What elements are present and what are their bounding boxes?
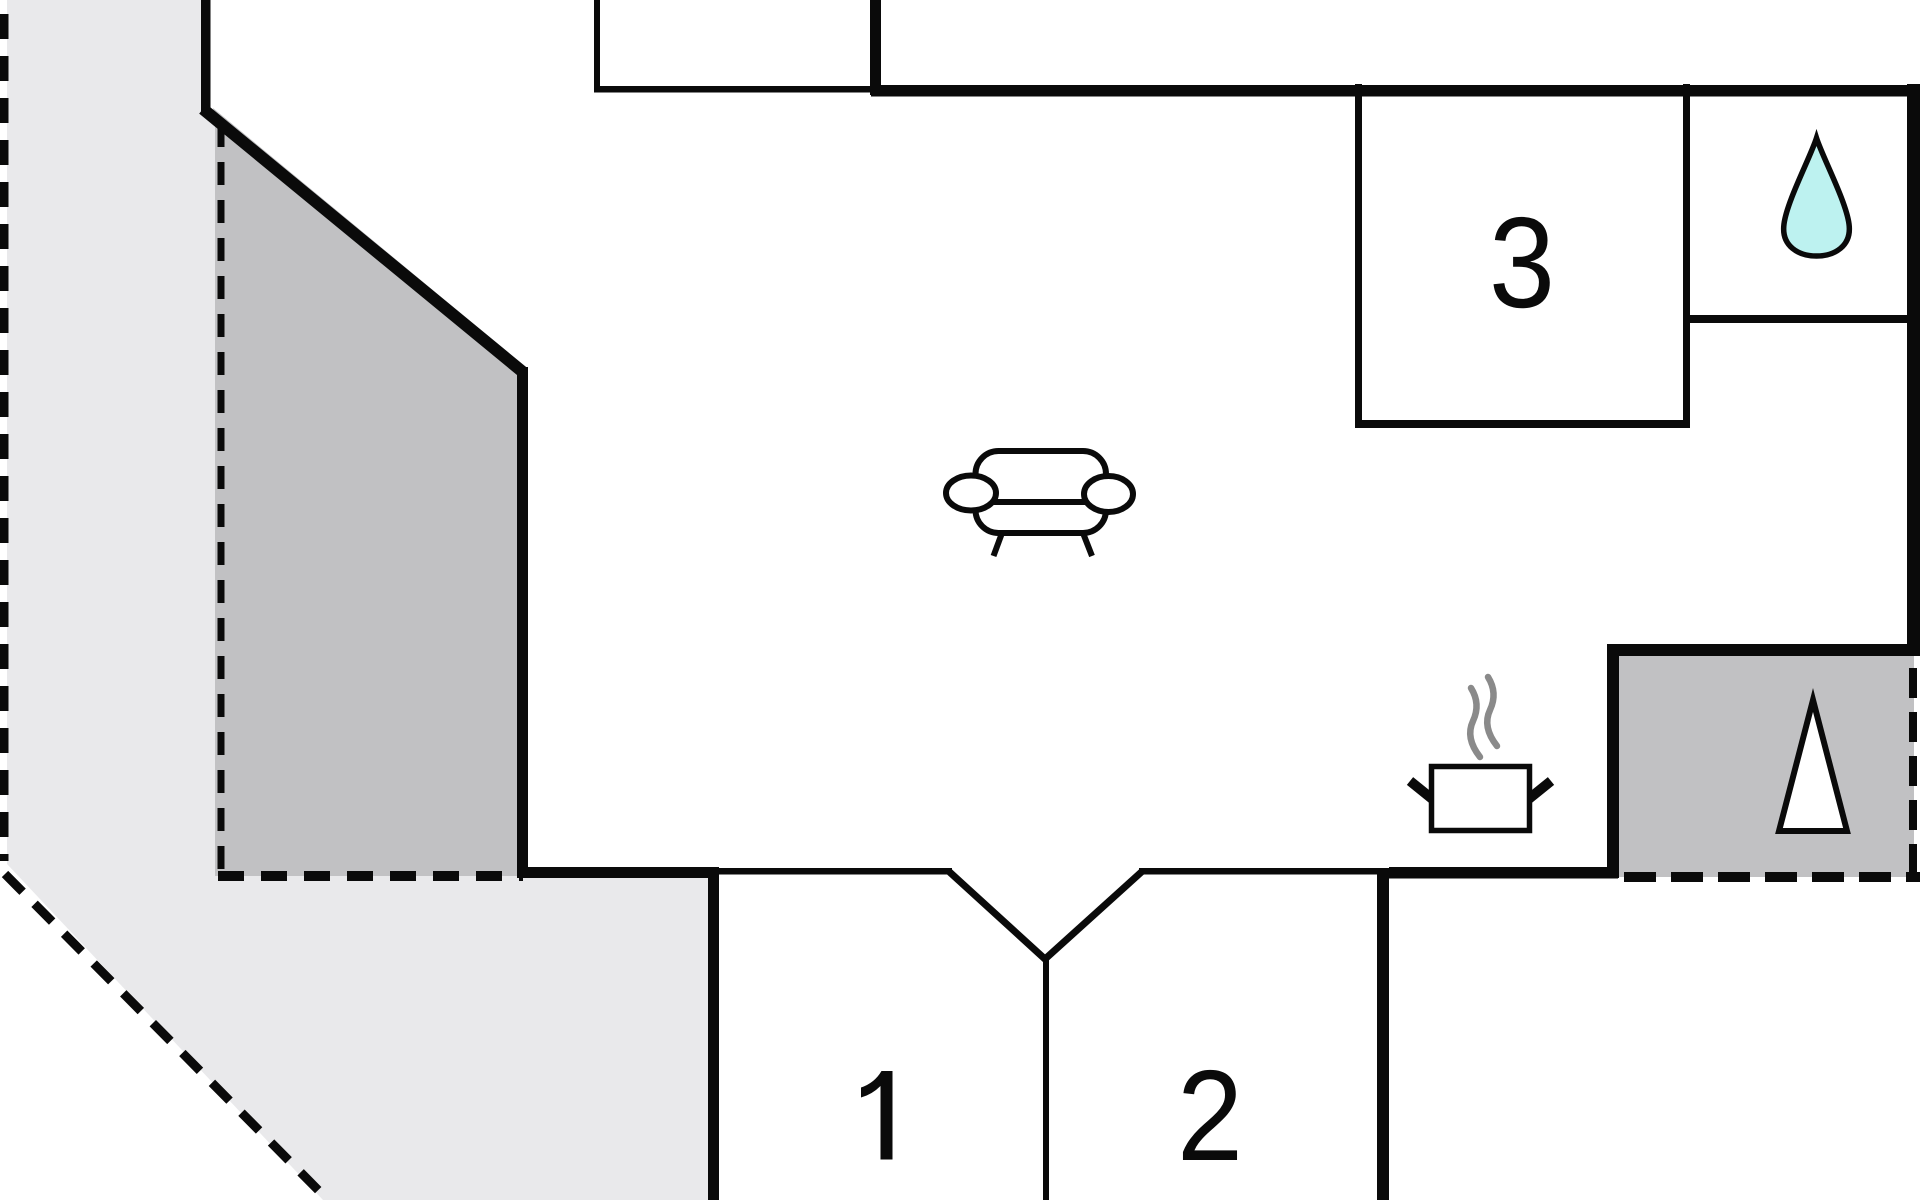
svg-text:3: 3 [1489,191,1555,335]
svg-text:2: 2 [1177,1044,1243,1188]
